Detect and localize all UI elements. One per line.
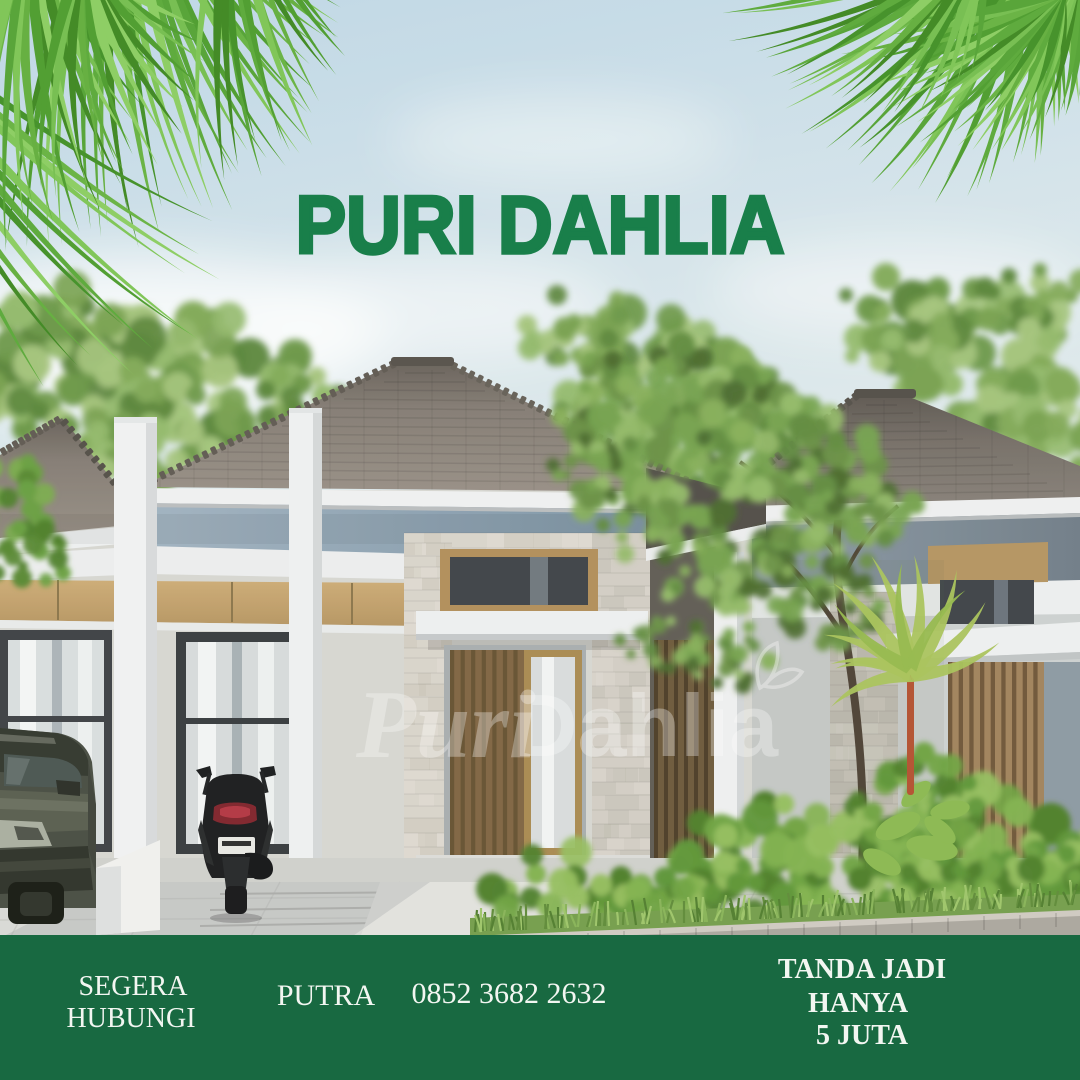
svg-text:HANYA: HANYA: [808, 988, 909, 1019]
svg-text:5 JUTA: 5 JUTA: [816, 1020, 909, 1051]
svg-text:SEGERA: SEGERA: [79, 971, 189, 1002]
svg-text:0852 3682 2632: 0852 3682 2632: [412, 977, 607, 1010]
svg-text:PUTRA: PUTRA: [277, 979, 376, 1012]
svg-text:TANDA JADI: TANDA JADI: [778, 954, 946, 985]
svg-text:HUBUNGI: HUBUNGI: [66, 1003, 195, 1034]
